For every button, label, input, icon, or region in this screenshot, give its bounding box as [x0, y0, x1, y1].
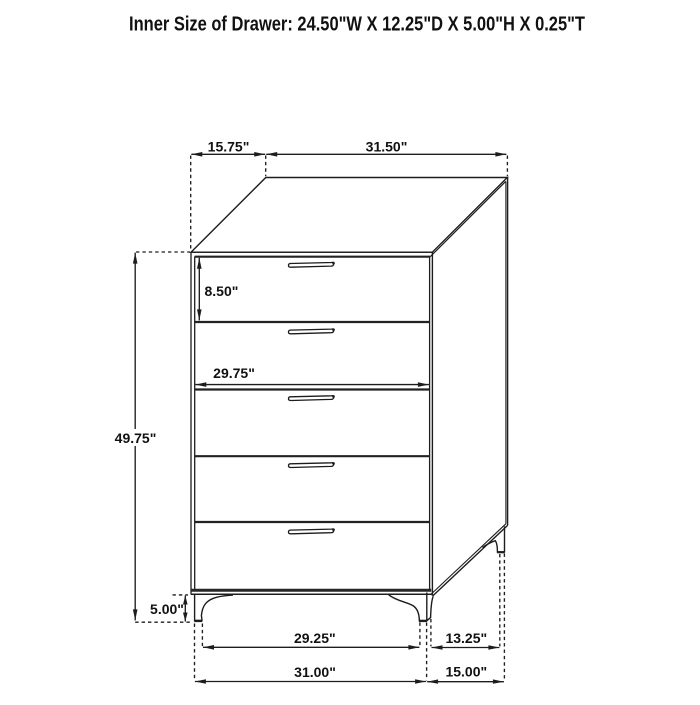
svg-text:31.00": 31.00" [294, 664, 336, 680]
svg-text:13.25": 13.25" [445, 630, 487, 646]
svg-text:15.00": 15.00" [445, 664, 487, 680]
svg-text:29.25": 29.25" [294, 630, 336, 646]
svg-text:49.75": 49.75" [115, 430, 157, 446]
svg-text:29.75": 29.75" [213, 365, 255, 381]
svg-text:8.50": 8.50" [205, 283, 239, 299]
svg-text:15.75": 15.75" [208, 138, 250, 154]
svg-text:Inner Size of Drawer: 24.50"W: Inner Size of Drawer: 24.50"W X 12.25"D … [129, 14, 585, 36]
svg-text:31.50": 31.50" [366, 138, 408, 154]
svg-text:5.00": 5.00" [150, 601, 184, 617]
